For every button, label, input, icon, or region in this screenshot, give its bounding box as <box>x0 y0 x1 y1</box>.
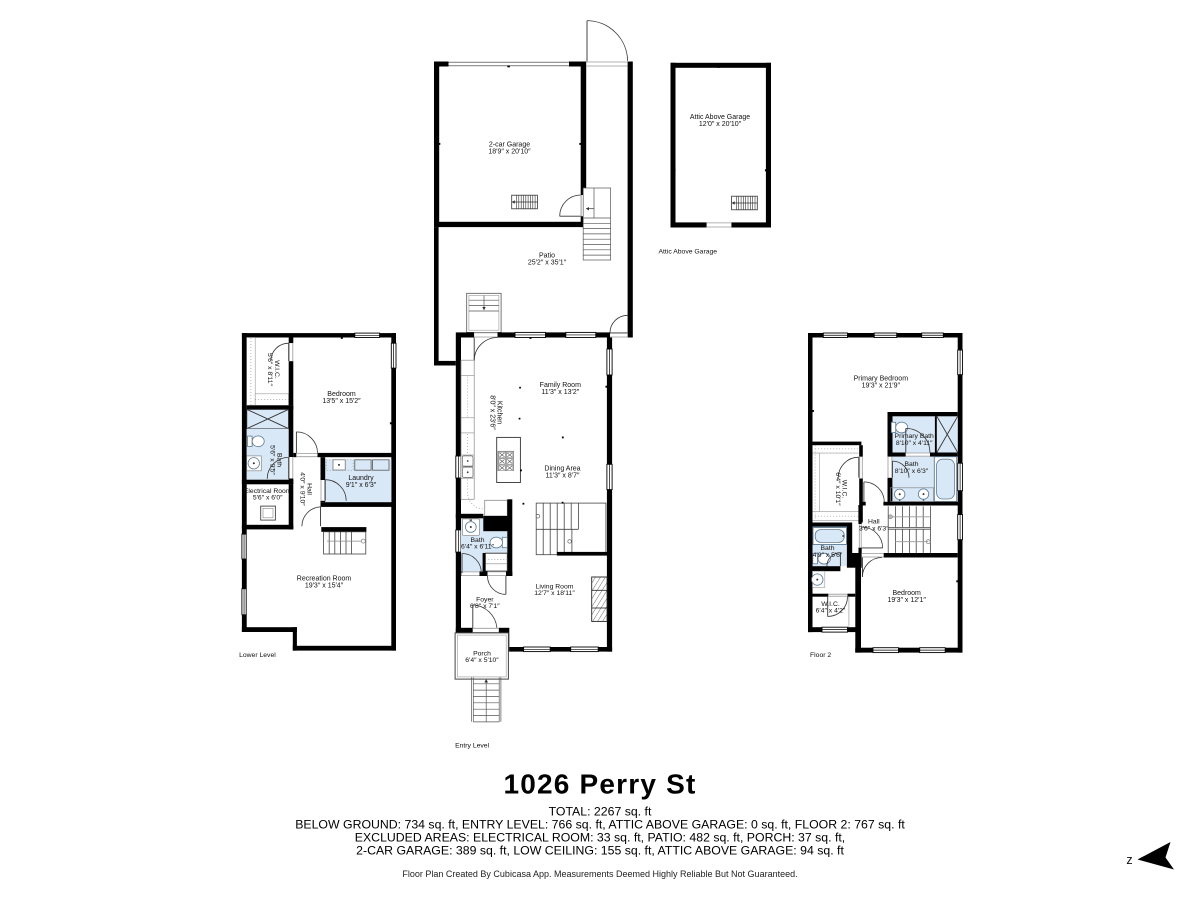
svg-text:11′3″ x 8′7″: 11′3″ x 8′7″ <box>546 473 580 480</box>
svg-text:Bedroom: Bedroom <box>327 391 356 398</box>
svg-text:Entry Level: Entry Level <box>455 742 489 749</box>
svg-text:5′6″ x 9′5″: 5′6″ x 9′5″ <box>269 445 276 475</box>
svg-text:19′3″ x 15′4″: 19′3″ x 15′4″ <box>305 582 344 589</box>
svg-text:TOTAL: 2267 sq. ft: TOTAL: 2267 sq. ft <box>549 805 652 819</box>
svg-text:Lower Level: Lower Level <box>239 652 276 659</box>
svg-text:11′3″ x 13′2″: 11′3″ x 13′2″ <box>541 389 579 396</box>
svg-text:4′9″ x 5′6″: 4′9″ x 5′6″ <box>813 552 843 559</box>
svg-text:6′4″ x 10′1″: 6′4″ x 10′1″ <box>834 472 841 506</box>
svg-text:Laundry: Laundry <box>348 475 374 482</box>
svg-text:Attic Above Garage: Attic Above Garage <box>659 249 718 256</box>
svg-text:4′0″ x 9′10″: 4′0″ x 9′10″ <box>299 472 306 506</box>
svg-text:EXCLUDED AREAS: ELECTRICAL ROO: EXCLUDED AREAS: ELECTRICAL ROOM: 33 sq. … <box>355 830 845 844</box>
svg-text:5′6″ x 8′11″: 5′6″ x 8′11″ <box>266 353 273 387</box>
svg-text:6′4″ x 4′2″: 6′4″ x 4′2″ <box>816 608 846 615</box>
svg-text:Dining Area: Dining Area <box>544 466 580 473</box>
svg-text:8′10″ x 6′3″: 8′10″ x 6′3″ <box>895 468 929 475</box>
svg-text:3′6″ x 6′3″: 3′6″ x 6′3″ <box>859 525 889 532</box>
svg-text:5′6″ x 6′0″: 5′6″ x 6′0″ <box>253 494 283 501</box>
svg-text:Kitchen: Kitchen <box>496 401 503 424</box>
svg-text:8′10″ x 4′11″: 8′10″ x 4′11″ <box>896 440 933 447</box>
svg-text:8′0″ x 23′6″: 8′0″ x 23′6″ <box>489 395 496 430</box>
svg-text:13′5″ x 15′2″: 13′5″ x 15′2″ <box>322 398 361 405</box>
svg-text:Floor 2: Floor 2 <box>810 652 831 659</box>
svg-text:12′0″ x 20′10″: 12′0″ x 20′10″ <box>699 121 742 128</box>
svg-text:2-CAR GARAGE: 389 sq. ft, LOW: 2-CAR GARAGE: 389 sq. ft, LOW CEILING: 1… <box>356 843 844 857</box>
svg-text:19′3″ x 12′1″: 19′3″ x 12′1″ <box>888 597 927 604</box>
svg-text:Bedroom: Bedroom <box>892 590 921 597</box>
svg-text:12′7″ x 18′11″: 12′7″ x 18′11″ <box>534 590 575 597</box>
svg-text:19′3″ x 21′9″: 19′3″ x 21′9″ <box>862 382 901 389</box>
svg-text:z: z <box>1126 853 1132 867</box>
svg-text:6′4″ x 6′11″: 6′4″ x 6′11″ <box>461 543 495 550</box>
svg-text:25′2″ x 35′1″: 25′2″ x 35′1″ <box>528 259 567 266</box>
svg-text:18′9″ x 20′10″: 18′9″ x 20′10″ <box>488 149 531 156</box>
svg-text:Attic Above Garage: Attic Above Garage <box>690 114 750 121</box>
svg-text:Floor Plan Created By Cubicasa: Floor Plan Created By Cubicasa App. Meas… <box>402 869 797 879</box>
svg-text:1026 Perry St: 1026 Perry St <box>503 769 696 800</box>
svg-text:Primary Bedroom: Primary Bedroom <box>854 375 909 382</box>
svg-text:Patio: Patio <box>539 252 555 259</box>
svg-text:9′1″ x 6′3″: 9′1″ x 6′3″ <box>346 482 377 489</box>
svg-text:6′4″ x 5′10″: 6′4″ x 5′10″ <box>465 657 499 664</box>
svg-text:Recreation Room: Recreation Room <box>297 575 352 582</box>
svg-text:2-car Garage: 2-car Garage <box>489 142 530 149</box>
svg-text:Family Room: Family Room <box>540 382 581 389</box>
